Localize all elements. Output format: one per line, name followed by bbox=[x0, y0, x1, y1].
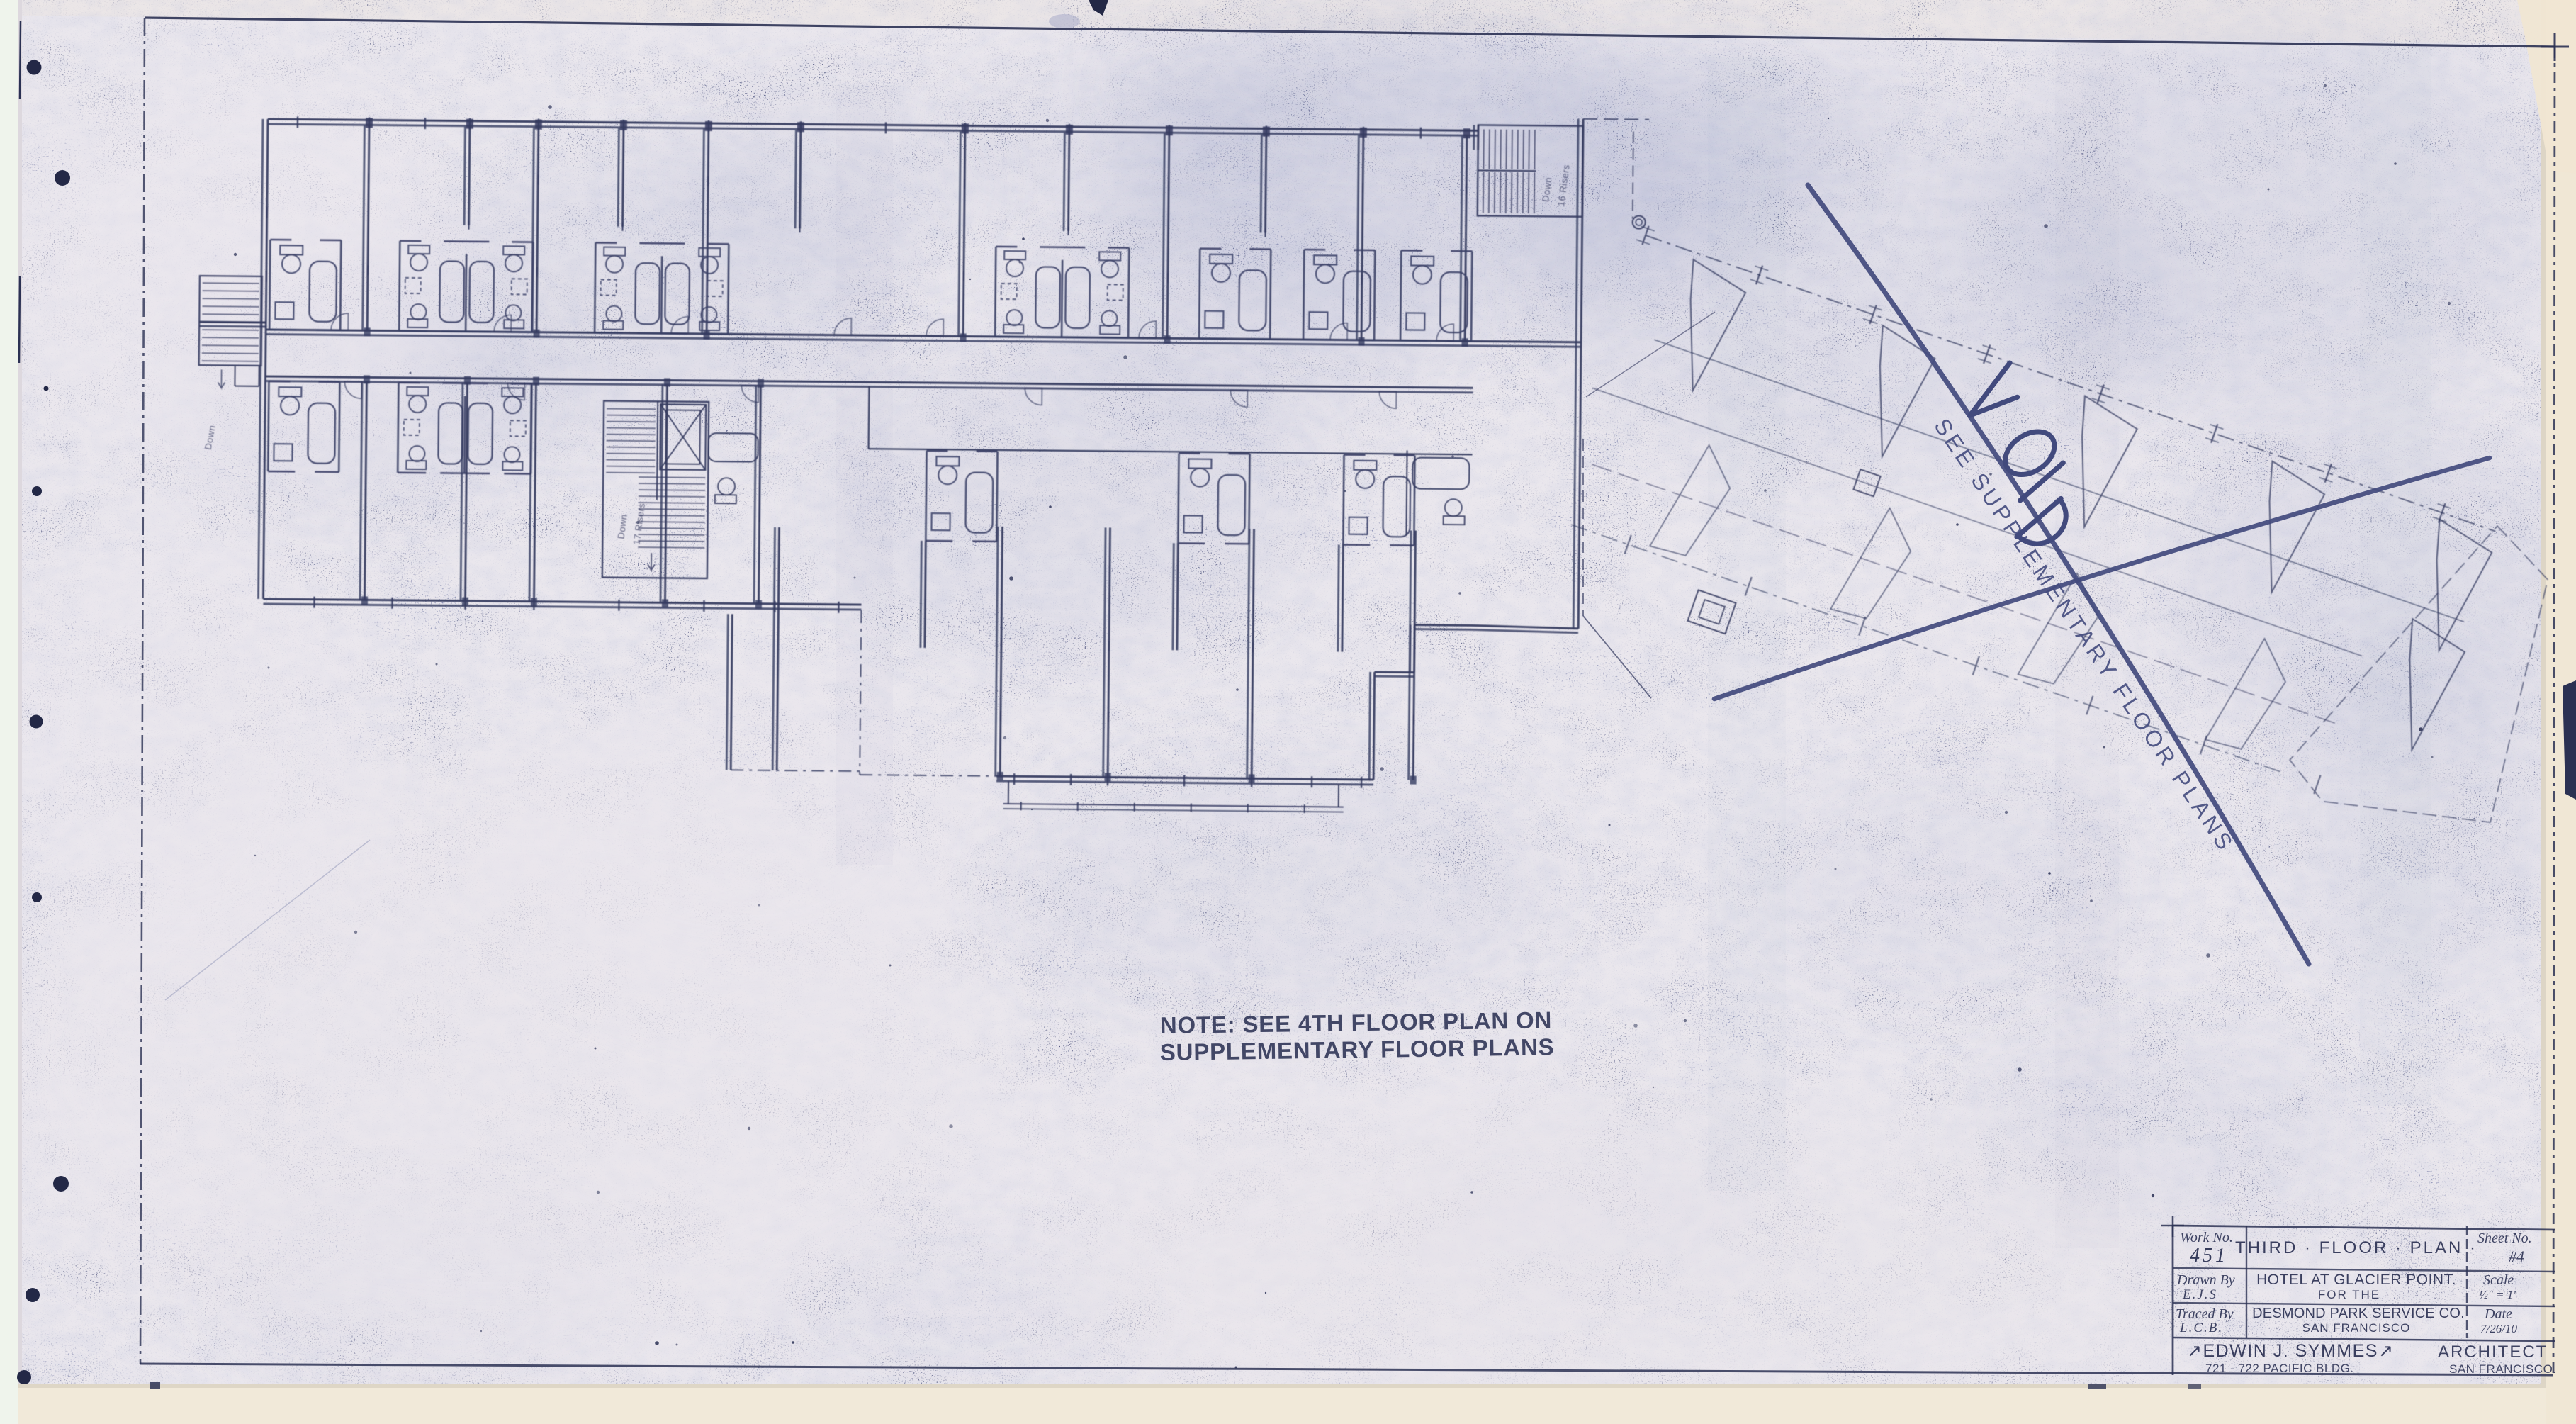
svg-text:451: 451 bbox=[2190, 1245, 2228, 1267]
svg-text:SAN FRANCISCO: SAN FRANCISCO bbox=[2302, 1321, 2411, 1335]
svg-text:ARCHITECT: ARCHITECT bbox=[2438, 1342, 2548, 1362]
svg-text:DESMOND PARK SERVICE CO.: DESMOND PARK SERVICE CO. bbox=[2252, 1306, 2465, 1321]
svg-text:Date: Date bbox=[2484, 1306, 2512, 1322]
svg-text:SAN FRANCISCO.: SAN FRANCISCO. bbox=[2449, 1362, 2557, 1376]
svg-text:Sheet No.: Sheet No. bbox=[2477, 1230, 2532, 1246]
svg-text:NOTE: SEE 4TH FLOOR PLAN ON: NOTE: SEE 4TH FLOOR PLAN ON bbox=[1160, 1007, 1553, 1038]
svg-text:7/26/10: 7/26/10 bbox=[2480, 1322, 2517, 1335]
svg-text:↗EDWIN J. SYMMES↗: ↗EDWIN J. SYMMES↗ bbox=[2187, 1341, 2394, 1361]
svg-text:Drawn By: Drawn By bbox=[2176, 1272, 2235, 1288]
svg-text:721 - 722 PACIFIC BLDG.: 721 - 722 PACIFIC BLDG. bbox=[2205, 1362, 2354, 1375]
svg-text:SUPPLEMENTARY FLOOR PLANS: SUPPLEMENTARY FLOOR PLANS bbox=[1160, 1033, 1555, 1065]
svg-text:THIRD · FLOOR · PLAN ·: THIRD · FLOOR · PLAN · bbox=[2235, 1238, 2477, 1257]
svg-text:#4: #4 bbox=[2509, 1248, 2524, 1265]
svg-text:E.J.S: E.J.S bbox=[2182, 1287, 2217, 1302]
svg-text:Traced By: Traced By bbox=[2176, 1306, 2234, 1322]
svg-text:HOTEL AT GLACIER POINT.: HOTEL AT GLACIER POINT. bbox=[2256, 1272, 2456, 1288]
svg-text:FOR THE: FOR THE bbox=[2318, 1288, 2380, 1301]
svg-text:Work No.: Work No. bbox=[2180, 1230, 2233, 1245]
svg-text:Scale: Scale bbox=[2483, 1272, 2514, 1288]
svg-text:L.C.B.: L.C.B. bbox=[2179, 1321, 2223, 1335]
svg-text:½" = 1': ½" = 1' bbox=[2479, 1288, 2516, 1301]
